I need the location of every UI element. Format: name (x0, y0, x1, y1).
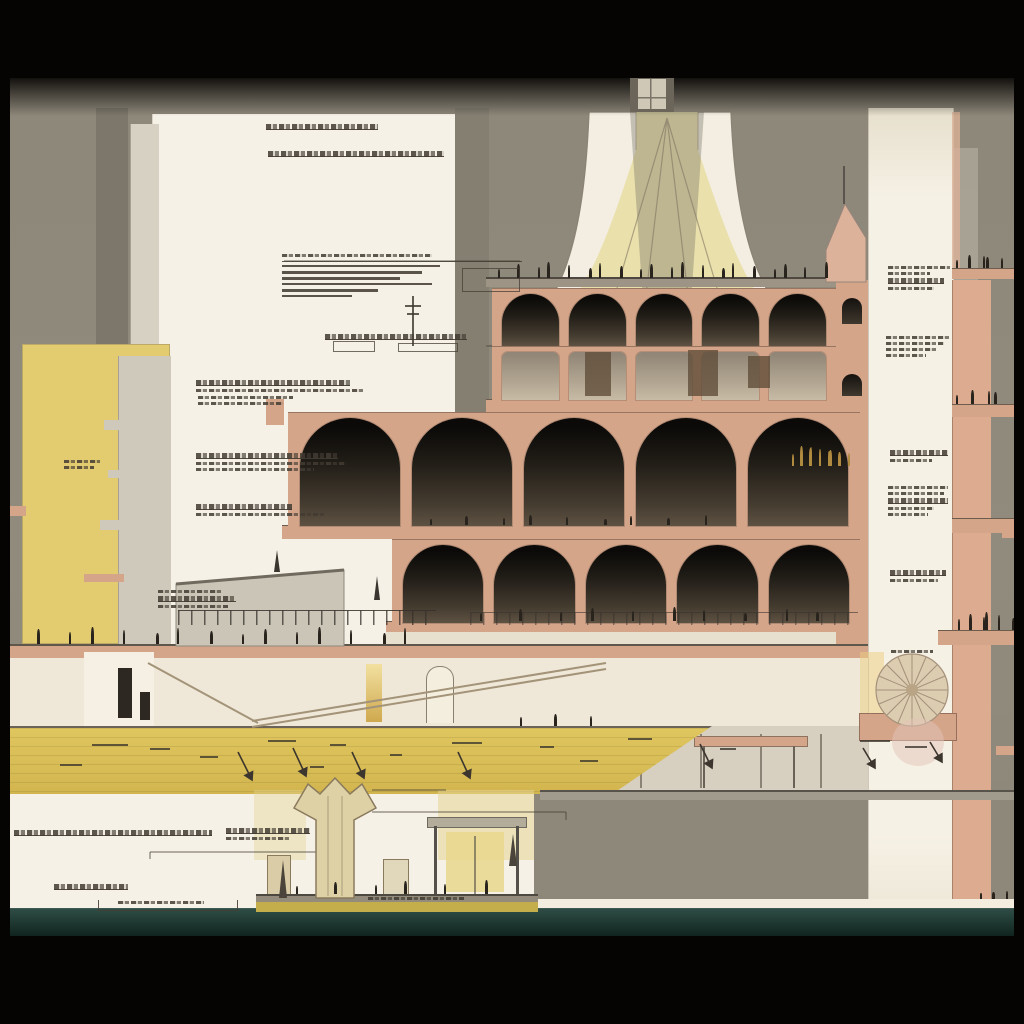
detail-bar (98, 910, 238, 911)
annotation-scribble (158, 590, 236, 611)
deck-mark (268, 740, 296, 742)
person-silhouette (480, 613, 482, 621)
canopy-post (793, 746, 795, 788)
detail-bar (282, 295, 352, 297)
person-silhouette (632, 611, 634, 621)
arch-opening (702, 294, 759, 346)
deck-mark (628, 738, 652, 740)
arch-opening (569, 294, 626, 346)
scribble-line (886, 342, 944, 345)
scribble-line (888, 513, 928, 516)
person-silhouette (430, 519, 432, 525)
scribble-line (886, 348, 936, 351)
figure-cluster (792, 444, 846, 466)
arcade-row (492, 346, 836, 400)
person-silhouette (1001, 258, 1003, 268)
platform-yellow-edge (256, 902, 538, 912)
stair-step (100, 520, 124, 530)
person-silhouette (242, 634, 244, 644)
person-silhouette (667, 518, 670, 525)
pavilion-roof (428, 818, 526, 827)
deck-mark (330, 744, 346, 746)
scribble-line (14, 830, 212, 836)
figure-cluster (980, 881, 1010, 899)
scribble-line (888, 492, 944, 495)
person-silhouette (958, 619, 960, 630)
floor-slab (282, 525, 864, 539)
scribble-line (368, 897, 464, 900)
person-silhouette (956, 395, 958, 404)
scribble-line (888, 507, 934, 510)
figure-cluster (430, 507, 730, 525)
scribble-line (891, 650, 933, 653)
deck-mark (92, 744, 128, 746)
frame-right (1014, 0, 1024, 1024)
stair-landing (84, 574, 124, 582)
person-silhouette (784, 264, 787, 278)
figure-cluster (480, 603, 852, 621)
person-silhouette (994, 392, 997, 404)
scribble-line (54, 884, 128, 890)
annotation-scribble (890, 570, 946, 585)
deck-mark (540, 746, 554, 748)
figure-cluster (958, 612, 1014, 630)
figure-cluster (956, 250, 1008, 268)
detail-bar (237, 900, 238, 910)
person-silhouette (792, 454, 794, 466)
person-silhouette (538, 267, 540, 278)
person-silhouette (547, 262, 550, 278)
stair-step (104, 420, 124, 430)
balcony-step (1002, 530, 1014, 538)
scribble-line (158, 605, 228, 608)
frame-top (0, 0, 1024, 78)
person-silhouette (590, 716, 592, 726)
detail-bar (282, 277, 400, 280)
person-silhouette (825, 262, 828, 278)
person-silhouette (983, 256, 985, 268)
annotation-scribble (64, 460, 100, 472)
person-silhouette (589, 268, 592, 278)
pavilion-wash (254, 790, 306, 860)
annotation-scribble (266, 124, 378, 133)
scribble-line (226, 837, 290, 840)
fan-platform (860, 714, 956, 740)
deck-mark (60, 764, 82, 766)
person-silhouette (744, 613, 747, 621)
person-silhouette (350, 630, 352, 644)
scribble-line (64, 466, 94, 469)
person-silhouette (264, 629, 267, 644)
water (0, 908, 1024, 939)
person-silhouette (732, 263, 734, 278)
detail-bar (282, 283, 432, 285)
person-silhouette (819, 449, 821, 466)
person-silhouette (156, 633, 159, 644)
annotation-scribble (198, 396, 293, 408)
deck-mark (580, 760, 598, 762)
person-silhouette (809, 448, 812, 466)
annotation-scribble (282, 254, 432, 260)
column-base-glow (860, 652, 884, 722)
person-silhouette (980, 893, 982, 899)
annotation-scribble (196, 380, 364, 395)
person-silhouette (702, 265, 704, 278)
person-silhouette (568, 265, 570, 278)
arcade-roof (486, 277, 840, 287)
arch-opening (502, 352, 559, 400)
annotation-scribble (268, 151, 444, 160)
arch-opening (769, 352, 826, 400)
person-silhouette (985, 612, 988, 630)
scribble-line (888, 287, 934, 290)
deck-mark (200, 756, 218, 758)
scribble-line (64, 460, 100, 463)
person-silhouette (37, 629, 40, 644)
scribble-line (890, 570, 946, 576)
balcony (938, 630, 1014, 645)
pink-wall (952, 280, 991, 935)
person-silhouette (503, 518, 505, 525)
pavilion-post (516, 826, 519, 896)
detail-box (333, 341, 375, 352)
balcony (952, 404, 1014, 417)
person-silhouette (318, 627, 321, 644)
glow-doorway (366, 664, 382, 722)
annotation-scribble (196, 453, 346, 474)
scribble-line (268, 151, 444, 157)
person-silhouette (681, 262, 684, 278)
person-silhouette (123, 630, 125, 644)
annotation-scribble (888, 266, 950, 293)
scribble-line (266, 124, 378, 130)
person-silhouette (986, 257, 989, 268)
person-silhouette (520, 717, 522, 726)
figure-cluster (520, 708, 616, 726)
scribble-line (890, 579, 938, 582)
deck-mark (390, 754, 402, 756)
stair-step (108, 470, 124, 478)
artwork-panel (585, 352, 611, 396)
architectural-section-illustration: Architectural cross-section illustration… (0, 0, 1024, 1024)
annotation-scribble (196, 504, 324, 519)
scribble-line (282, 254, 432, 257)
person-silhouette (703, 610, 705, 621)
detail-box (462, 268, 520, 292)
figure-cluster (6, 626, 434, 644)
person-silhouette (650, 264, 653, 278)
scribble-line (888, 486, 948, 489)
scribble-line (196, 389, 364, 392)
person-silhouette (177, 628, 179, 644)
person-silhouette (828, 451, 830, 466)
scribble-line (196, 468, 314, 471)
person-silhouette (838, 452, 841, 466)
frame-left (0, 0, 10, 1024)
scribble-line (198, 402, 283, 405)
person-silhouette (998, 615, 1000, 630)
lantern-window (638, 79, 666, 109)
arch-opening (769, 294, 826, 346)
detail-bar (282, 265, 440, 267)
person-silhouette (296, 886, 298, 894)
annotation-scribble (891, 650, 933, 656)
person-silhouette (599, 263, 601, 278)
deck-mark (905, 746, 927, 748)
scribble-line (888, 272, 930, 275)
terrace-railing (178, 610, 436, 625)
person-silhouette (554, 714, 557, 726)
person-silhouette (210, 631, 213, 644)
scribble-line (890, 459, 932, 462)
artwork-panel (748, 356, 770, 388)
detail-bar (98, 900, 99, 910)
person-silhouette (604, 519, 607, 525)
person-silhouette (992, 892, 995, 899)
scribble-line (196, 380, 350, 386)
annotation-scribble (368, 897, 464, 903)
detail-box (398, 343, 458, 352)
person-silhouette (848, 453, 850, 466)
light-pilaster (130, 124, 159, 346)
person-silhouette (69, 632, 71, 644)
person-silhouette (383, 633, 386, 644)
person-silhouette (673, 607, 676, 621)
person-silhouette (566, 517, 568, 525)
person-silhouette (591, 608, 594, 621)
scribble-line (886, 336, 950, 339)
scribble-line (888, 498, 948, 504)
person-silhouette (774, 269, 776, 278)
arch-opening (502, 294, 559, 346)
annotation-scribble (14, 830, 212, 839)
post (820, 734, 822, 788)
person-silhouette (956, 260, 958, 268)
person-silhouette (1006, 891, 1008, 899)
person-silhouette (971, 390, 974, 404)
annotation-scribble (888, 486, 948, 519)
arched-doorway (426, 666, 454, 723)
arch-opening (636, 352, 693, 400)
figure-cluster (296, 876, 514, 894)
artwork-panel (688, 350, 718, 396)
person-silhouette (334, 882, 337, 894)
person-silhouette (444, 884, 446, 894)
person-silhouette (969, 614, 972, 630)
person-silhouette (404, 628, 406, 644)
deck-mark (452, 742, 482, 744)
person-silhouette (968, 255, 971, 268)
machinery (140, 692, 150, 720)
person-silhouette (753, 266, 756, 278)
arch-opening (748, 418, 848, 526)
detail-bar (282, 271, 422, 274)
canopy-post (703, 746, 705, 788)
annotation-scribble (890, 450, 948, 465)
person-silhouette (988, 391, 990, 404)
scribble-line (196, 462, 346, 465)
detail-bar (282, 289, 378, 292)
scribble-line (196, 504, 292, 510)
person-silhouette (465, 516, 468, 525)
scribble-line (158, 590, 222, 593)
person-silhouette (620, 266, 623, 278)
scribble-line (118, 901, 204, 904)
annotation-scribble (886, 336, 950, 360)
figure-cluster (498, 258, 834, 278)
person-silhouette (800, 446, 803, 466)
scribble-line (888, 266, 950, 269)
person-silhouette (560, 612, 562, 621)
arcade-row (492, 288, 836, 346)
dark-pillar (96, 108, 128, 348)
frame-bottom (0, 936, 1024, 1024)
balcony-shelf (952, 268, 1014, 279)
annotation-scribble (226, 828, 310, 843)
canopy (695, 737, 807, 746)
tower-window (842, 298, 862, 324)
deck-mark (720, 748, 736, 750)
arch-opening (636, 294, 693, 346)
annotation-scribble (118, 901, 204, 907)
scribble-line (196, 513, 324, 516)
person-silhouette (519, 609, 522, 621)
person-silhouette (375, 885, 377, 894)
scribble-line (158, 596, 236, 602)
yellow-deck (0, 726, 712, 794)
detail-bar (282, 261, 522, 262)
floor-slab (486, 399, 842, 413)
person-silhouette (671, 267, 673, 278)
figure-cluster (956, 386, 1008, 404)
deck-mark (310, 766, 324, 768)
person-silhouette (296, 632, 298, 644)
person-silhouette (705, 515, 707, 525)
scribble-line (198, 396, 293, 399)
side-wall (268, 856, 290, 896)
right-ledge (996, 746, 1016, 755)
tower-window (842, 374, 862, 396)
frame-shadow (0, 78, 1024, 116)
scribble-line (196, 453, 338, 459)
person-silhouette (722, 268, 725, 278)
person-silhouette (786, 609, 788, 621)
person-silhouette (529, 515, 532, 525)
person-silhouette (816, 612, 819, 621)
machinery (118, 668, 132, 718)
person-silhouette (91, 627, 94, 644)
scribble-line (325, 334, 467, 340)
person-silhouette (640, 269, 642, 278)
scribble-line (226, 828, 310, 834)
person-silhouette (485, 880, 488, 894)
person-silhouette (804, 267, 806, 278)
annotation-scribble (54, 884, 128, 893)
scribble-line (888, 278, 944, 284)
person-silhouette (404, 881, 407, 894)
deck-mark (860, 740, 890, 742)
pavement (540, 790, 1014, 800)
scribble-line (890, 450, 948, 456)
scribble-line (886, 354, 926, 357)
person-silhouette (630, 516, 632, 525)
deck-mark (150, 748, 170, 750)
